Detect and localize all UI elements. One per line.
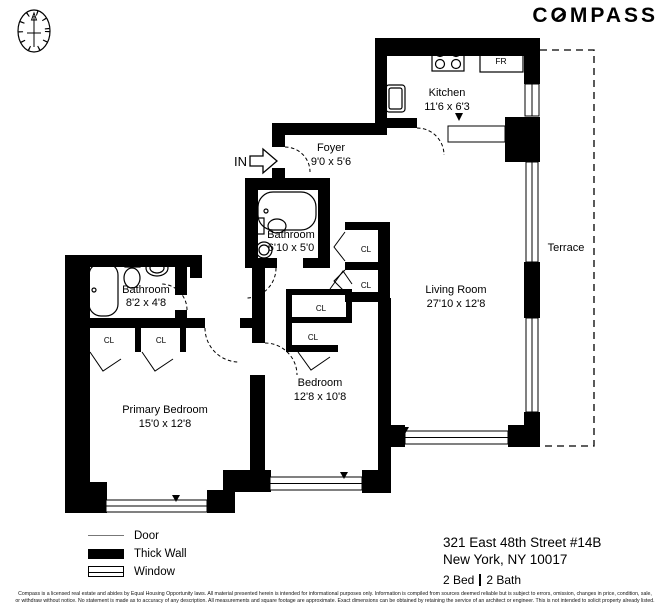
foyer-label: Foyer <box>317 142 345 154</box>
bathroom-primary-label: Bathroom <box>122 284 170 296</box>
legend: Door Thick Wall Window <box>88 529 187 583</box>
kitchen-door-arc <box>417 128 444 155</box>
bathtub-icon <box>89 263 118 316</box>
disclaimer-line2: or withdraw without notice. No statement… <box>4 598 666 605</box>
bed-bath-divider <box>479 574 481 586</box>
room-labels: Kitchen 11'6 x 6'3 Foyer 9'0 x 5'6 Bathr… <box>104 56 584 430</box>
closet-label: CL <box>156 336 167 345</box>
kitchen-label: Kitchen <box>429 87 466 99</box>
living-room-dims: 27'10 x 12'8 <box>427 298 486 310</box>
living-room-label: Living Room <box>425 284 486 296</box>
closet-label: CL <box>361 245 372 254</box>
primary-bedroom-dims: 15'0 x 12'8 <box>139 418 192 430</box>
legend-window: Window <box>88 565 187 578</box>
foyer-dims: 9'0 x 5'6 <box>311 156 351 168</box>
address-line2: New York, NY 10017 <box>443 551 601 568</box>
window-icon <box>88 566 124 577</box>
address-line1: 321 East 48th Street #14B <box>443 534 601 551</box>
legend-thick-wall-label: Thick Wall <box>134 548 187 560</box>
bed-count: 2 Bed <box>443 573 474 587</box>
bed-bath-count: 2 Bed 2 Bath <box>443 573 601 587</box>
in-label: IN <box>234 154 247 169</box>
legend-door-label: Door <box>134 530 159 542</box>
bedroom-label: Bedroom <box>298 377 343 389</box>
closet-label: CL <box>316 304 327 313</box>
fridge-label: FR <box>495 56 506 66</box>
closet-label: CL <box>104 336 115 345</box>
terrace-label: Terrace <box>548 242 585 254</box>
address-block: 321 East 48th Street #14B New York, NY 1… <box>443 534 601 587</box>
legend-door: Door <box>88 529 187 542</box>
floor-plan-svg: IN Kitchen 11'6 x 6'3 Foyer 9'0 x 5'6 Ba… <box>0 0 670 612</box>
kitchen-sink-icon <box>386 85 405 112</box>
bathroom-primary-dims: 8'2 x 4'8 <box>126 297 166 309</box>
closet-label: CL <box>308 333 319 342</box>
primary-bedroom-door-arc <box>205 328 239 362</box>
floor-plan-page: COMPASS <box>0 0 670 612</box>
primary-bedroom-label: Primary Bedroom <box>122 404 208 416</box>
bathroom-small-label: Bathroom <box>267 229 315 241</box>
legend-thick-wall: Thick Wall <box>88 547 187 560</box>
disclaimer-line1: Compass is a licensed real estate and ab… <box>4 591 666 598</box>
legend-window-label: Window <box>134 566 175 578</box>
bath-count: 2 Bath <box>486 573 521 587</box>
bedroom-dims: 12'8 x 10'8 <box>294 391 347 403</box>
entry-arrow: IN <box>234 149 277 173</box>
entry-door-arc <box>285 147 310 172</box>
thick-wall-icon <box>88 549 124 559</box>
disclaimer: Compass is a licensed real estate and ab… <box>4 591 666 604</box>
door-line-icon <box>88 535 124 536</box>
kitchen-counter <box>448 126 505 142</box>
bathtub-icon <box>258 192 316 230</box>
sink-icon <box>146 260 168 276</box>
kitchen-dims: 11'6 x 6'3 <box>424 101 470 113</box>
bathroom-small-dims: 6'10 x 5'0 <box>268 242 314 254</box>
closet-label: CL <box>361 281 372 290</box>
